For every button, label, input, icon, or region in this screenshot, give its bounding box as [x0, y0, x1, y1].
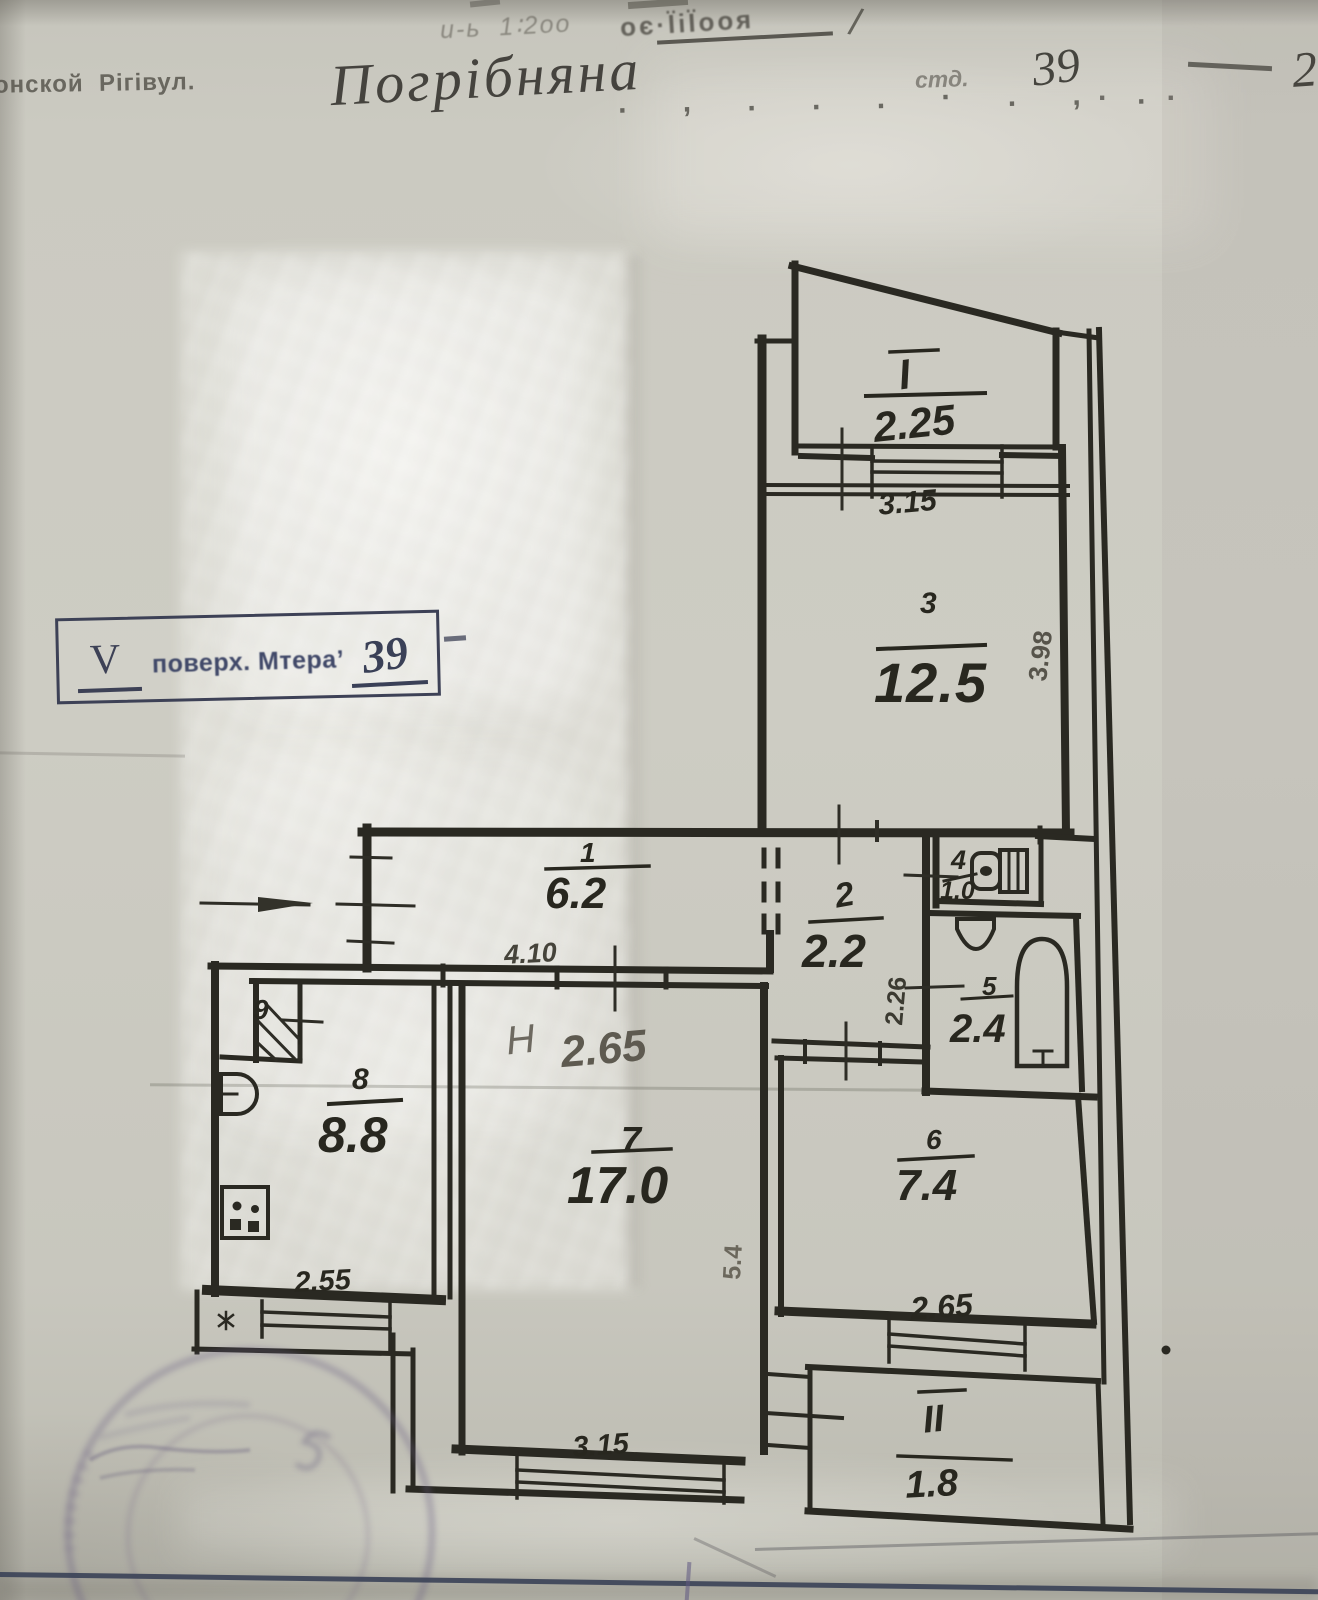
svg-text:7: 7 [621, 1119, 643, 1160]
svg-text:1.0: 1.0 [940, 877, 975, 905]
svg-text:2.55: 2.55 [293, 1264, 353, 1299]
svg-text:4: 4 [950, 845, 966, 875]
svg-text:2.25: 2.25 [870, 395, 958, 450]
svg-text:2.65: 2.65 [558, 1021, 649, 1077]
svg-text:6: 6 [926, 1124, 942, 1155]
svg-text:12.5: 12.5 [874, 651, 987, 714]
svg-text:3.98: 3.98 [1022, 629, 1058, 683]
svg-text:17.0: 17.0 [567, 1157, 668, 1215]
svg-text:8.8: 8.8 [318, 1107, 388, 1163]
svg-text:4.10: 4.10 [502, 937, 557, 970]
svg-text:2.2: 2.2 [801, 925, 866, 977]
svg-text:1: 1 [580, 837, 596, 868]
svg-text:2.4: 2.4 [949, 1007, 1006, 1051]
svg-text:2: 2 [831, 875, 857, 916]
svg-text:H: H [504, 1017, 537, 1064]
svg-text:7.4: 7.4 [896, 1161, 957, 1210]
svg-text:3.15: 3.15 [571, 1428, 630, 1464]
svg-text:3.15: 3.15 [877, 484, 939, 522]
svg-text:2.26: 2.26 [880, 976, 912, 1027]
svg-text:II: II [921, 1398, 948, 1442]
svg-text:5.4: 5.4 [718, 1244, 748, 1280]
svg-text:I: I [895, 350, 914, 398]
svg-text:6.2: 6.2 [545, 869, 607, 918]
svg-text:2.65: 2.65 [908, 1286, 975, 1326]
svg-text:9: 9 [253, 994, 269, 1025]
svg-text:3: 3 [920, 587, 937, 620]
svg-text:8: 8 [352, 1063, 369, 1096]
svg-text:1.8: 1.8 [904, 1462, 960, 1507]
